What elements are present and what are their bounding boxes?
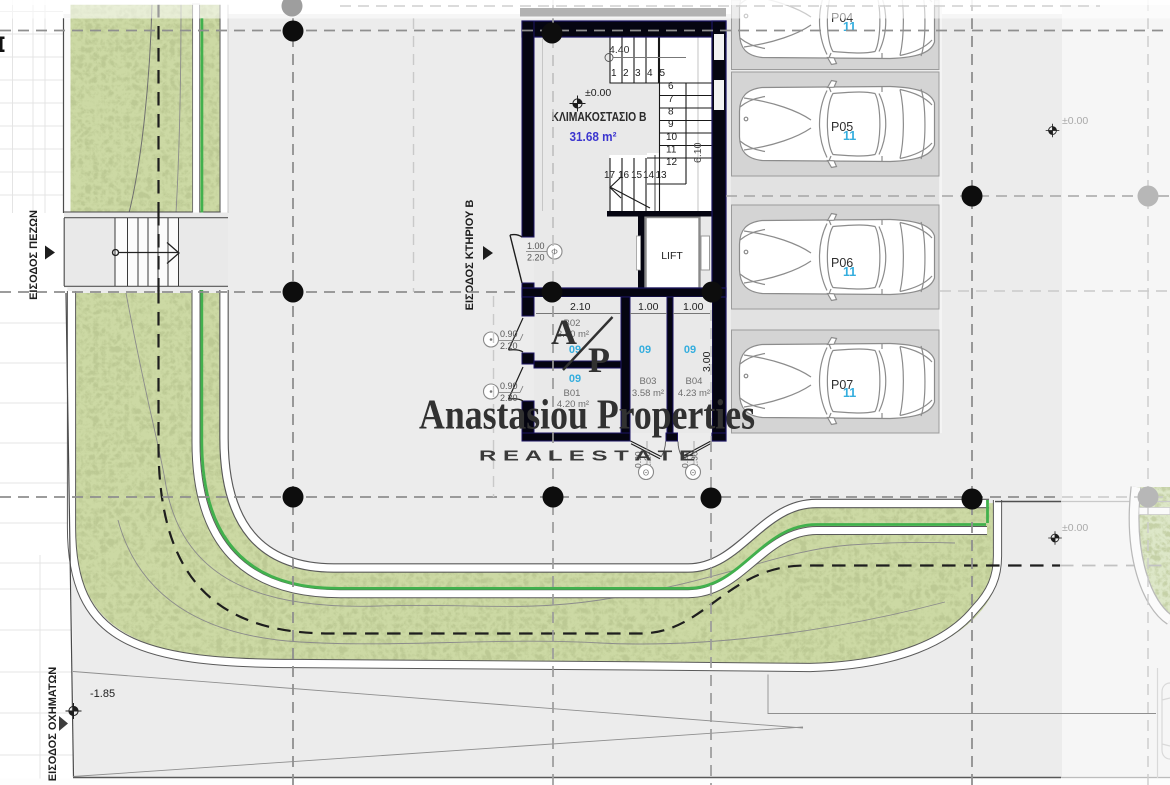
svg-text:ΕΙΣΟΔΟΣ ΠΕΖΩΝ: ΕΙΣΟΔΟΣ ΠΕΖΩΝ <box>28 210 40 300</box>
svg-text:11: 11 <box>843 20 856 34</box>
svg-text:31.68 m²: 31.68 m² <box>570 130 617 144</box>
svg-text:17: 17 <box>604 170 616 181</box>
svg-text:13: 13 <box>656 170 668 181</box>
svg-text:±0.00: ±0.00 <box>585 87 611 99</box>
svg-text:LIFT: LIFT <box>661 250 683 262</box>
svg-text:16: 16 <box>618 170 630 181</box>
svg-text:Anastasiou Properties: Anastasiou Properties <box>419 393 755 439</box>
svg-text:Θ: Θ <box>690 469 696 478</box>
svg-text:1: 1 <box>611 68 617 79</box>
svg-text:P: P <box>588 340 610 380</box>
svg-text:4.40: 4.40 <box>609 44 630 56</box>
svg-text:09: 09 <box>569 373 581 385</box>
svg-text:ΕΙΣΟΔΟΣ ΟΧΗΜΑΤΩΝ: ΕΙΣΟΔΟΣ ΟΧΗΜΑΤΩΝ <box>47 667 59 781</box>
svg-text:14: 14 <box>643 170 655 181</box>
svg-text:2: 2 <box>623 68 629 79</box>
svg-text:1.00: 1.00 <box>638 301 659 313</box>
svg-text:09: 09 <box>684 344 696 356</box>
svg-text:4: 4 <box>647 68 653 79</box>
svg-text:15: 15 <box>631 170 643 181</box>
svg-text:-1.85: -1.85 <box>90 688 115 700</box>
svg-text:09: 09 <box>639 344 651 356</box>
svg-text:11: 11 <box>843 265 856 279</box>
svg-text:11: 11 <box>843 129 856 143</box>
svg-text:Θ: Θ <box>643 469 649 478</box>
svg-text:0.90: 0.90 <box>500 381 518 391</box>
svg-text:8: 8 <box>668 107 674 118</box>
svg-text:B03: B03 <box>640 376 657 387</box>
svg-text:9: 9 <box>668 119 674 130</box>
svg-text:5: 5 <box>660 68 666 79</box>
svg-text:11: 11 <box>666 145 677 156</box>
svg-text:1.00: 1.00 <box>527 241 545 251</box>
svg-text:Φ: Φ <box>551 247 558 257</box>
svg-text:6: 6 <box>668 81 674 92</box>
svg-text:10: 10 <box>666 132 678 143</box>
svg-text:±0.00: ±0.00 <box>1062 522 1088 534</box>
svg-text:R E A L E S T A T E: R E A L E S T A T E <box>479 449 696 465</box>
svg-text:0.90: 0.90 <box>500 329 518 339</box>
svg-text:±0.00: ±0.00 <box>1062 115 1088 127</box>
svg-text:ΚΛΙΜΑΚΟΣΤΑΣΙΟ Β: ΚΛΙΜΑΚΟΣΤΑΣΙΟ Β <box>552 110 647 124</box>
svg-text:7: 7 <box>668 94 674 105</box>
svg-text:1.00: 1.00 <box>683 301 704 313</box>
svg-text:3: 3 <box>635 68 641 79</box>
svg-text:A: A <box>551 312 577 352</box>
svg-text:6.10: 6.10 <box>692 142 704 163</box>
svg-text:11: 11 <box>843 386 856 400</box>
svg-text:B04: B04 <box>686 376 703 387</box>
svg-text:12: 12 <box>666 157 678 168</box>
svg-text:ΕΙΣΟΔΟΣ ΚΤΗΡΙΟΥ Β: ΕΙΣΟΔΟΣ ΚΤΗΡΙΟΥ Β <box>464 200 476 311</box>
svg-text:2.20: 2.20 <box>527 253 545 263</box>
svg-text:2.20: 2.20 <box>500 341 518 351</box>
